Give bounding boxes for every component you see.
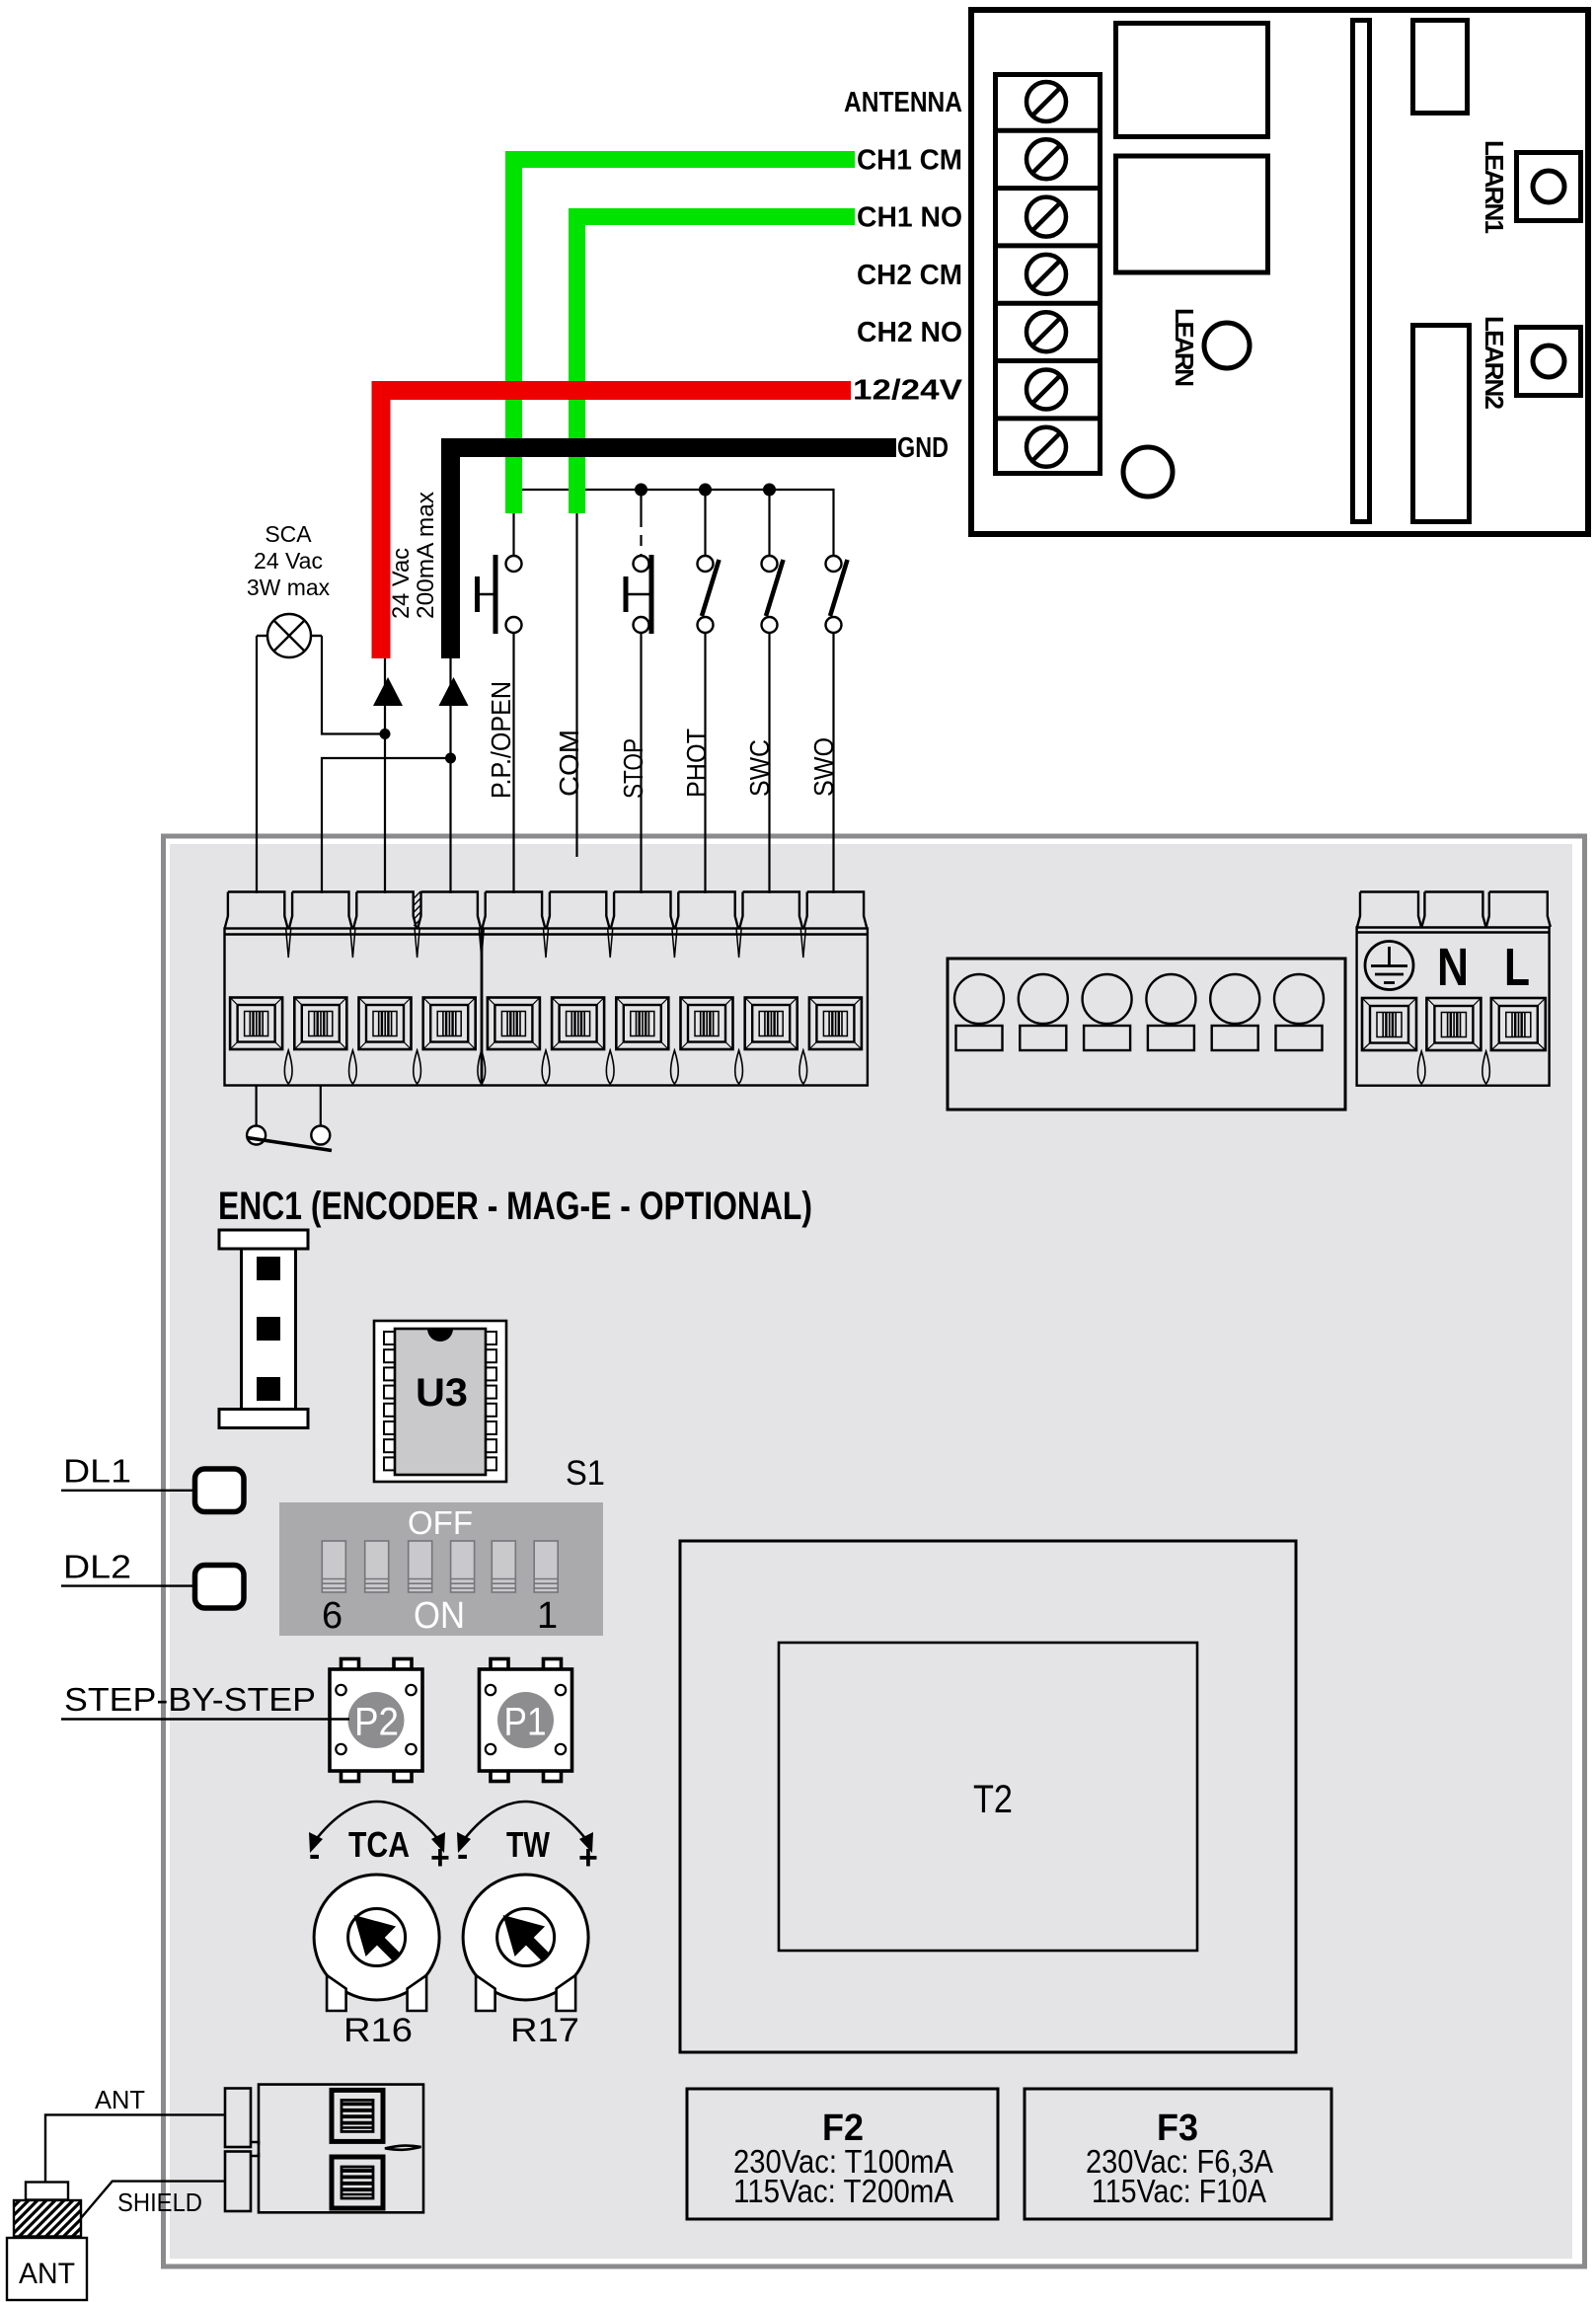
svg-text:LEARN1: LEARN1 (1480, 140, 1509, 234)
svg-text:200mA max: 200mA max (413, 492, 439, 619)
svg-text:ENC1 (ENCODER - MAG-E - OPTION: ENC1 (ENCODER - MAG-E - OPTIONAL) (218, 1185, 812, 1228)
svg-text:SWC: SWC (744, 739, 775, 797)
svg-text:ANT: ANT (19, 2258, 75, 2290)
svg-text:CH2 CM: CH2 CM (857, 260, 962, 291)
svg-text:TW: TW (506, 1824, 550, 1865)
svg-text:LEARN2: LEARN2 (1480, 316, 1509, 410)
svg-text:DL1: DL1 (63, 1453, 131, 1490)
svg-text:115Vac: T200mA: 115Vac: T200mA (733, 2173, 953, 2209)
svg-text:S1: S1 (566, 1454, 605, 1493)
svg-text:ON: ON (414, 1595, 465, 1637)
svg-text:STEP-BY-STEP: STEP-BY-STEP (64, 1681, 316, 1718)
svg-text:STOP: STOP (618, 738, 648, 799)
svg-text:P.P./OPEN: P.P./OPEN (486, 681, 516, 799)
svg-text:R16: R16 (343, 2012, 413, 2049)
svg-text:CH2 NO: CH2 NO (857, 317, 962, 348)
svg-text:L: L (1504, 938, 1530, 997)
svg-text:CH1 NO: CH1 NO (857, 202, 962, 234)
svg-text:SCA: SCA (265, 521, 312, 547)
svg-text:SWO: SWO (808, 737, 839, 797)
svg-text:N: N (1437, 938, 1469, 997)
svg-text:P2: P2 (354, 1701, 399, 1744)
svg-text:PHOT: PHOT (681, 729, 712, 798)
svg-text:LEARN: LEARN (1170, 308, 1199, 387)
svg-text:24 Vac: 24 Vac (388, 548, 415, 619)
svg-text:12/24V: 12/24V (853, 375, 963, 407)
svg-text:T2: T2 (973, 1778, 1013, 1821)
svg-text:R17: R17 (510, 2012, 579, 2049)
svg-text:U3: U3 (416, 1371, 468, 1415)
svg-text:1: 1 (537, 1595, 558, 1637)
svg-text:OFF: OFF (408, 1504, 473, 1541)
svg-text:-: - (457, 1836, 468, 1874)
svg-text:3W max: 3W max (247, 575, 331, 600)
svg-text:+: + (578, 1839, 598, 1877)
svg-text:ANT: ANT (95, 2085, 145, 2114)
svg-text:DL2: DL2 (63, 1549, 131, 1585)
svg-text:+: + (430, 1839, 450, 1877)
svg-text:GND: GND (897, 432, 949, 464)
svg-text:COM: COM (554, 729, 584, 797)
svg-text:-: - (309, 1836, 320, 1874)
svg-text:P1: P1 (504, 1701, 547, 1744)
svg-text:115Vac: F10A: 115Vac: F10A (1092, 2173, 1266, 2209)
svg-text:6: 6 (322, 1595, 342, 1637)
svg-text:CH1 CM: CH1 CM (857, 144, 962, 176)
svg-text:24 Vac: 24 Vac (254, 548, 323, 574)
svg-text:SHIELD: SHIELD (117, 2187, 202, 2217)
svg-text:TCA: TCA (348, 1824, 410, 1865)
svg-text:ANTENNA: ANTENNA (844, 87, 962, 118)
